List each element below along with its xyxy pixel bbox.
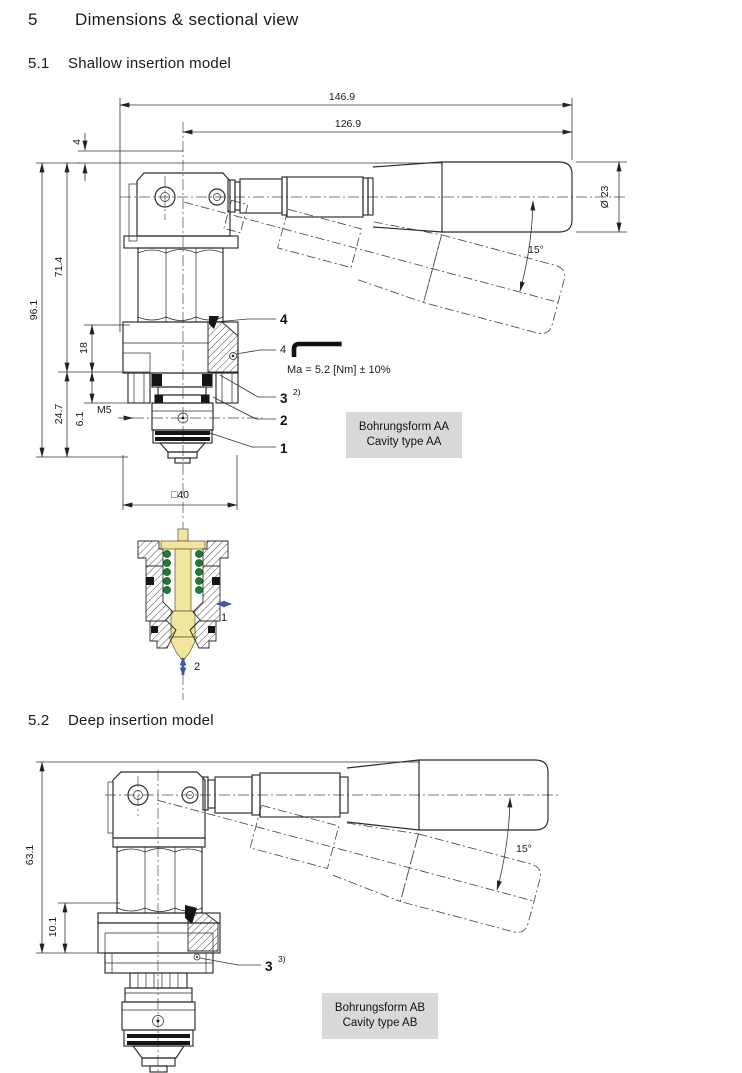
dim-lever-length: 126.9 (335, 118, 361, 130)
shallow-model-drawing: 15° 146.9 126.9 4 Ø 23 96.1 71.4 (28, 91, 627, 520)
dim-handle-diameter: Ø 23 (599, 185, 611, 208)
angle-arc-deep (497, 798, 510, 890)
callout-2-label: 2 (280, 413, 288, 428)
callout-3-footnote-deep: 3) (278, 954, 286, 964)
technical-drawings: 15° 146.9 126.9 4 Ø 23 96.1 71.4 (0, 0, 742, 1073)
mounting-flange (123, 316, 238, 373)
angle-label: 15° (528, 244, 544, 256)
flange-deep (98, 905, 220, 973)
thread-size-label: M5 (97, 404, 112, 416)
port1-label: 1 (221, 612, 227, 624)
hex-nut-deep (117, 847, 202, 913)
callout-1-label: 1 (280, 441, 288, 456)
dim-flange-height-deep: 10.1 (47, 917, 59, 938)
valve-body-deep (108, 772, 205, 847)
dimensions-deep: 63.1 10.1 (24, 762, 420, 953)
torque-note: Ma = 5.2 [Nm] ± 10% (287, 364, 391, 376)
callout-3-label: 3 (280, 391, 288, 406)
cartridge-deep (122, 973, 195, 1072)
hex-nut (138, 248, 223, 322)
dim-insert-depth: 24.7 (53, 404, 65, 425)
sectional-view: 1 2 (138, 522, 231, 700)
valve-body (124, 173, 238, 248)
dim-upper-height: 71.4 (53, 257, 65, 278)
dimensions-shallow: 146.9 126.9 4 Ø 23 96.1 71.4 18 24.7 (28, 91, 627, 510)
dim-total-height: 96.1 (28, 300, 40, 321)
cavity-aa-line1: Bohrungsform AA (359, 420, 449, 435)
cavity-type-box-ab: Bohrungsform AB Cavity type AB (322, 993, 438, 1039)
angle-label-deep: 15° (516, 843, 532, 855)
hex-key-icon (294, 344, 341, 357)
cavity-type-box-aa: Bohrungsform AA Cavity type AA (346, 412, 462, 458)
dim-body-height: 18 (78, 342, 90, 354)
cavity-ab-line2: Cavity type AB (343, 1016, 418, 1031)
callout-3-label-deep: 3 (265, 959, 273, 974)
lever-rotated-position (175, 168, 567, 336)
datasheet-page: 5 Dimensions & sectional view 5.1 Shallo… (0, 0, 742, 1073)
dim-overall-length: 146.9 (329, 91, 355, 103)
cutaway-hatch (208, 322, 238, 372)
dim-flange-square: □40 (171, 489, 189, 501)
port2-label: 2 (194, 661, 200, 673)
callout-4-label: 4 (280, 312, 288, 327)
deep-model-drawing: 15° 63.1 10.1 3 3) (24, 760, 560, 1073)
dim-thread-depth: 6.1 (74, 412, 86, 427)
dim-total-height-deep: 63.1 (24, 845, 36, 866)
callout-4-screw-label: 4 (280, 344, 286, 356)
dim-offset-top: 4 (71, 139, 83, 145)
callout-3-footnote: 2) (293, 387, 301, 397)
cavity-aa-line2: Cavity type AA (367, 435, 442, 450)
cavity-ab-line1: Bohrungsform AB (335, 1001, 425, 1016)
